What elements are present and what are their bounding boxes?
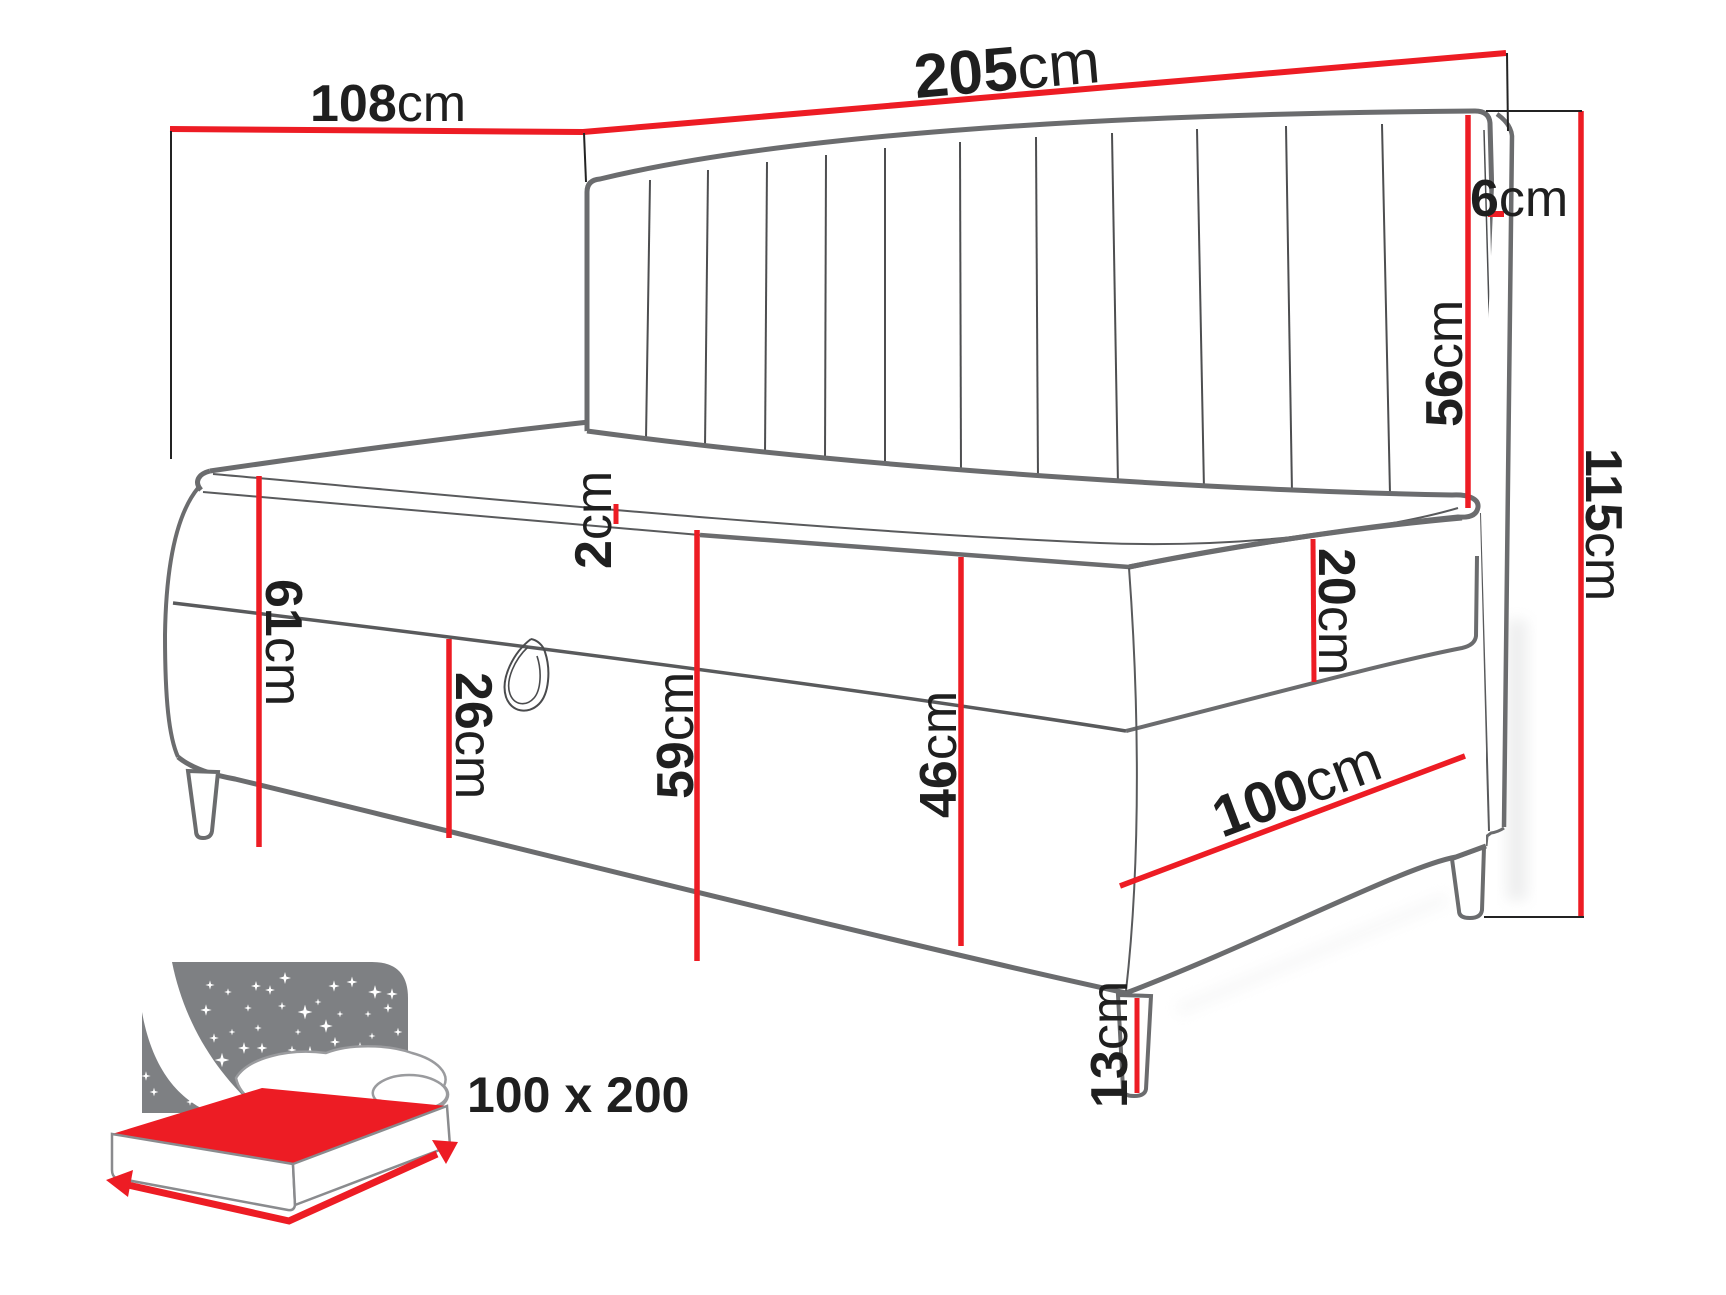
svg-text:56cm: 56cm — [1416, 300, 1474, 427]
svg-text:100 x 200: 100 x 200 — [467, 1067, 689, 1123]
svg-text:6cm: 6cm — [1470, 170, 1568, 228]
svg-text:20cm: 20cm — [1307, 548, 1365, 675]
svg-text:13cm: 13cm — [1081, 981, 1139, 1108]
svg-text:115cm: 115cm — [1574, 448, 1632, 601]
svg-text:46cm: 46cm — [910, 691, 968, 818]
svg-text:26cm: 26cm — [444, 672, 502, 799]
svg-text:59cm: 59cm — [647, 672, 705, 799]
svg-text:108cm: 108cm — [310, 75, 466, 133]
svg-text:61cm: 61cm — [254, 579, 312, 706]
svg-text:205cm: 205cm — [911, 27, 1102, 112]
svg-text:2cm: 2cm — [565, 471, 623, 569]
